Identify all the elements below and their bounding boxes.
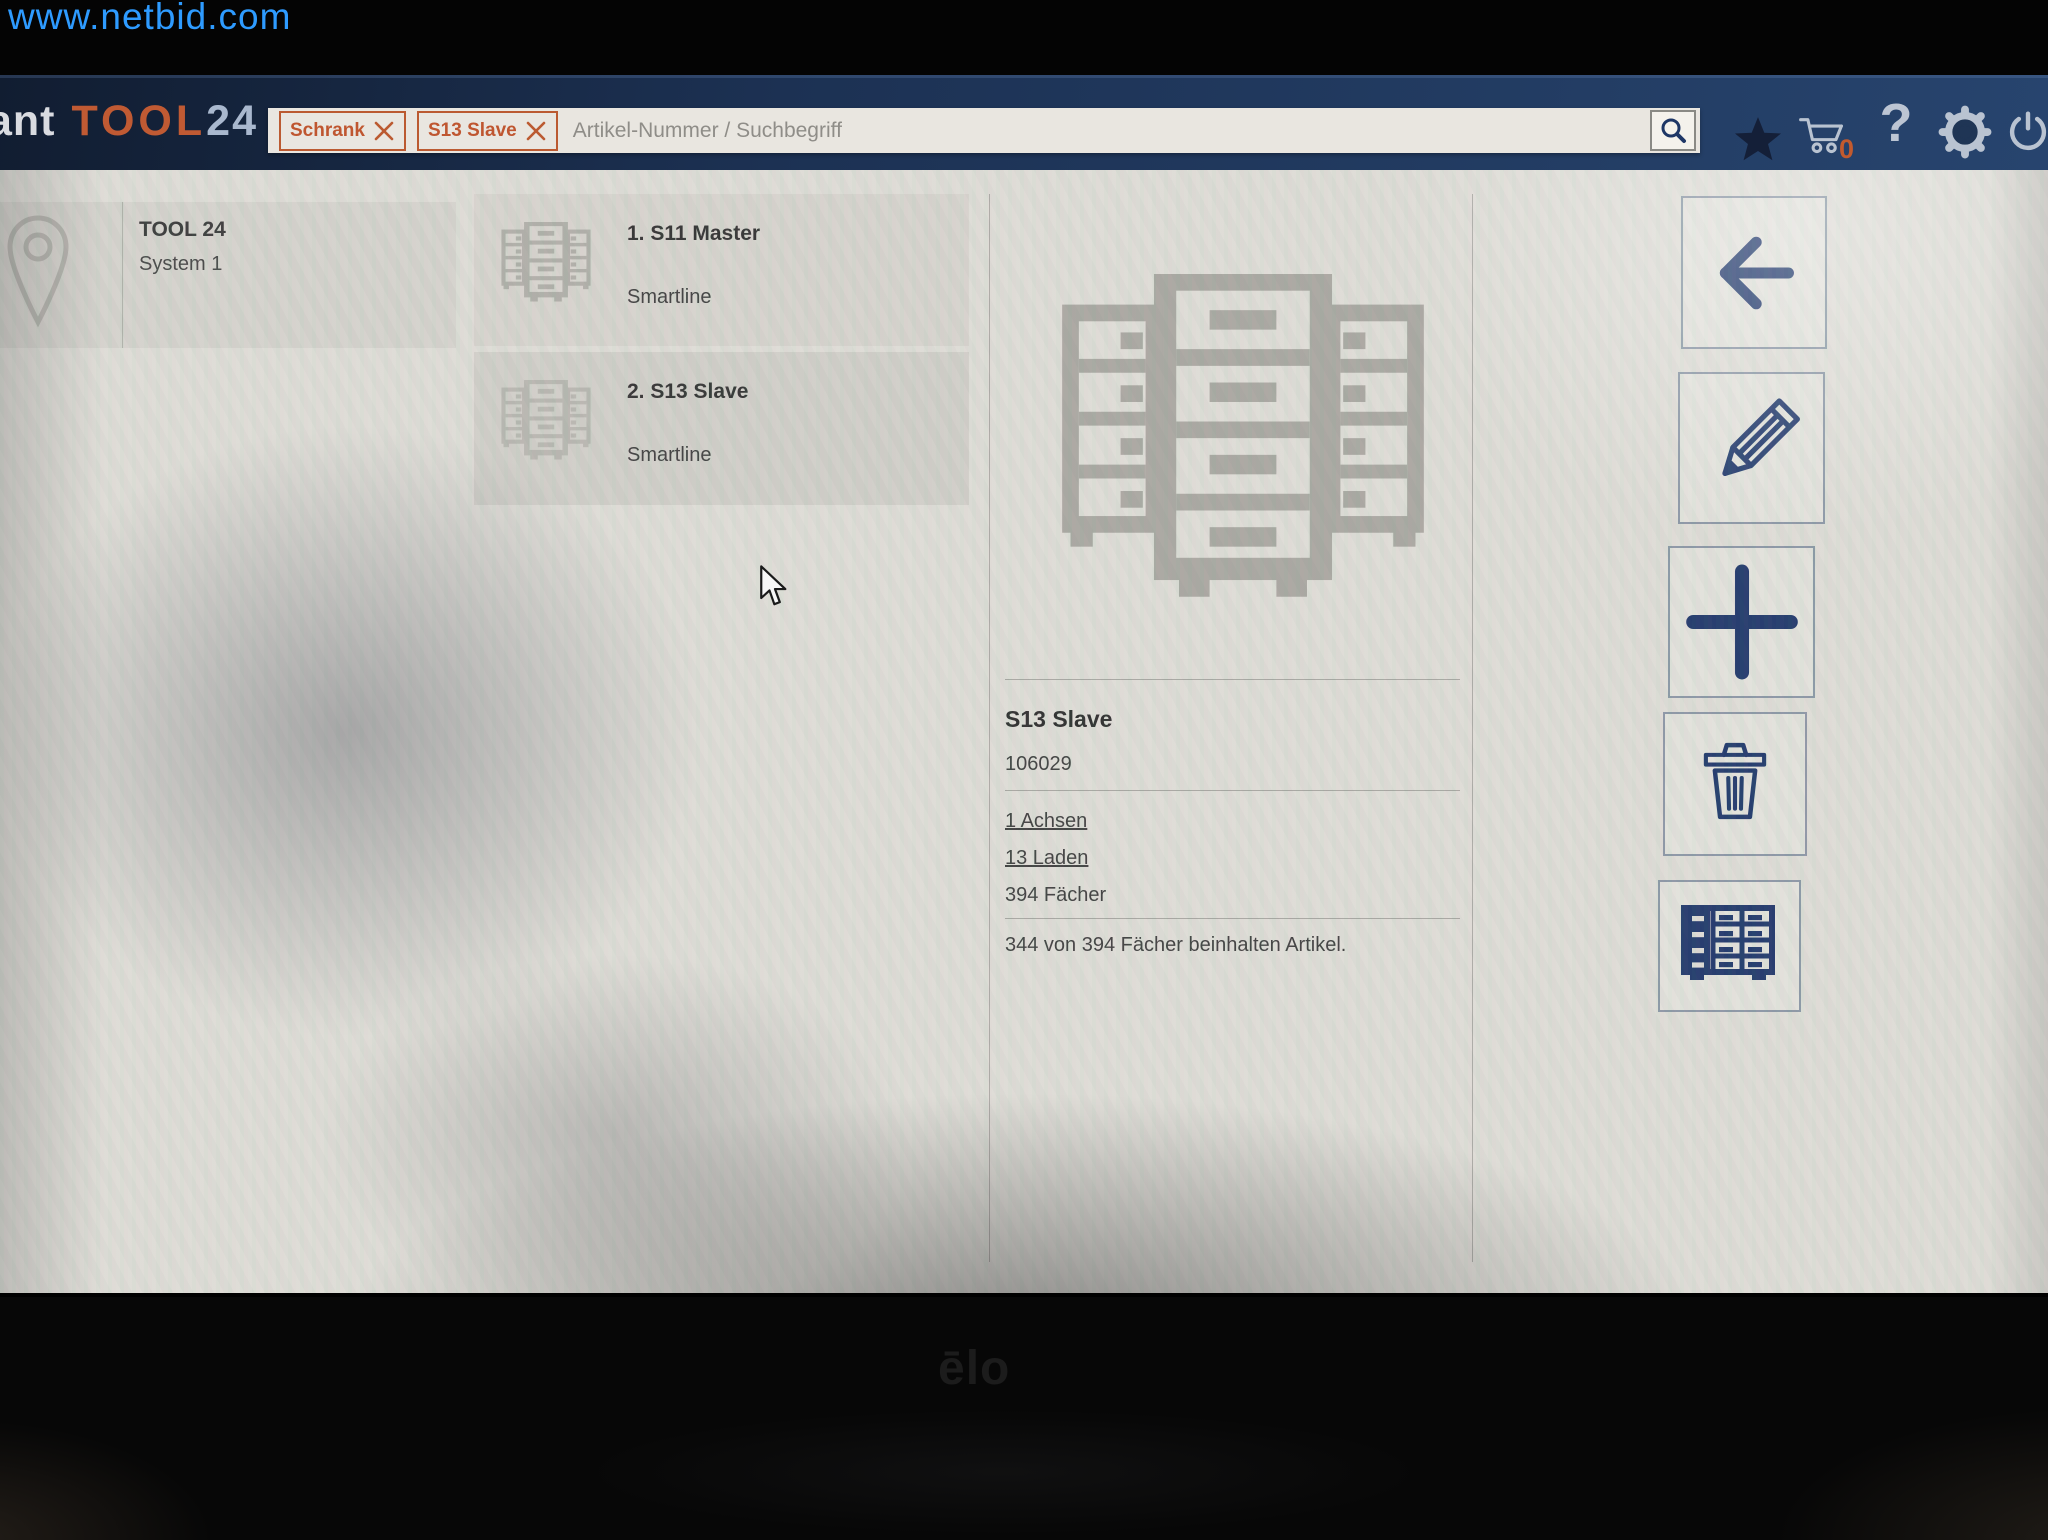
cabinet-icon <box>498 380 594 465</box>
cart-count-badge: 0 <box>1839 134 1854 165</box>
pencil-icon <box>1692 388 1812 508</box>
drawer-cabinet-icon <box>1678 902 1782 990</box>
detail-number: 106029 <box>1005 753 1072 776</box>
filter-chip-label: Schrank <box>290 120 365 142</box>
back-button[interactable] <box>1681 196 1827 349</box>
axes-link[interactable]: 1 Achsen <box>1005 810 1087 833</box>
panel-divider <box>989 194 990 1262</box>
edit-button[interactable] <box>1678 372 1825 524</box>
monitor-screen: antTOOL24 Schrank S13 Slave <box>0 75 2048 1293</box>
location-pin-icon <box>5 214 71 336</box>
list-item-title: 2. S13 Slave <box>627 380 748 404</box>
detail-divider <box>1005 918 1460 919</box>
photo-top-strip: www.netbid.com <box>0 0 2048 75</box>
monitor-brand-logo: ēlo <box>938 1341 1010 1396</box>
help-button[interactable]: ? <box>1876 91 1916 155</box>
power-button[interactable] <box>2006 107 2048 157</box>
arrow-left-icon <box>1695 218 1813 328</box>
logo-text-tool: TOOL <box>72 97 207 145</box>
power-icon <box>2006 110 2048 154</box>
mouse-cursor <box>758 565 792 609</box>
monitor-bezel: ēlo <box>0 1293 2048 1540</box>
remove-filter-icon[interactable] <box>373 120 395 142</box>
detail-divider <box>1005 679 1460 680</box>
filter-chip-s13-slave[interactable]: S13 Slave <box>417 111 558 151</box>
watermark-url: www.netbid.com <box>8 0 291 38</box>
main-content: TOOL 24 System 1 1. S11 Master Smartline… <box>0 170 2048 1293</box>
app-header: antTOOL24 Schrank S13 Slave <box>0 75 2048 170</box>
detail-divider <box>1005 790 1460 791</box>
search-placeholder: Artikel-Nummer / Suchbegriff <box>573 119 842 143</box>
location-panel[interactable]: TOOL 24 System 1 <box>0 202 456 348</box>
favorite-star-button[interactable] <box>1733 115 1783 163</box>
list-item-s11-master[interactable]: 1. S11 Master Smartline <box>474 194 969 346</box>
drawers-link[interactable]: 13 Laden <box>1005 847 1088 870</box>
detail-title: S13 Slave <box>1005 706 1112 733</box>
search-icon <box>1658 116 1688 146</box>
add-button[interactable] <box>1668 546 1815 698</box>
trash-icon <box>1679 728 1791 840</box>
cabinet-icon <box>498 222 594 307</box>
list-item-s13-slave[interactable]: 2. S13 Slave Smartline <box>474 352 969 505</box>
remove-filter-icon[interactable] <box>525 120 547 142</box>
photo-of-monitor: www.netbid.com antTOOL24 Schrank S13 Sl <box>0 0 2048 1536</box>
logo-text-ant: ant <box>0 97 56 145</box>
plus-icon <box>1680 560 1804 684</box>
settings-button[interactable] <box>1938 105 1992 159</box>
delete-button[interactable] <box>1663 712 1807 856</box>
list-item-subtitle: Smartline <box>627 286 711 309</box>
help-icon: ? <box>1880 92 1913 154</box>
logo-text-24: 24 <box>206 97 258 145</box>
list-item-title: 1. S11 Master <box>627 222 760 246</box>
cabinet-illustration <box>1048 274 1438 619</box>
filter-chip-schrank[interactable]: Schrank <box>279 111 406 151</box>
cart-button[interactable]: 0 <box>1793 108 1859 164</box>
settings-gear-icon <box>1938 105 1992 159</box>
star-icon <box>1733 115 1783 163</box>
compartments-count: 394 Fächer <box>1005 884 1106 907</box>
occupancy-summary: 344 von 394 Fächer beinhalten Artikel. <box>1005 934 1346 957</box>
app-logo: antTOOL24 <box>0 97 258 146</box>
search-button[interactable] <box>1650 110 1696 151</box>
panel-divider <box>1472 194 1473 1262</box>
location-text: TOOL 24 System 1 <box>122 202 226 348</box>
search-bar[interactable]: Schrank S13 Slave Artikel-Num <box>268 108 1700 153</box>
cabinet-view-button[interactable] <box>1658 880 1801 1012</box>
filter-chip-label: S13 Slave <box>428 120 517 142</box>
list-item-subtitle: Smartline <box>627 444 711 467</box>
location-subtitle: System 1 <box>139 253 226 276</box>
location-title: TOOL 24 <box>139 218 226 242</box>
